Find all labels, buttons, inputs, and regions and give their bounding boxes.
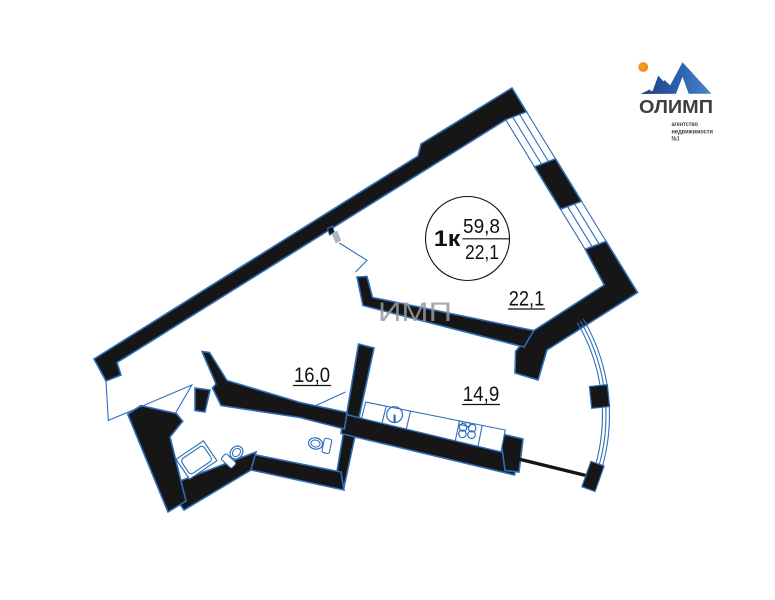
svg-text:ОЛИМП: ОЛИМП [639, 97, 713, 117]
svg-text:1к: 1к [434, 226, 461, 251]
svg-text:14,9: 14,9 [463, 383, 500, 406]
svg-text:59,8: 59,8 [463, 216, 500, 238]
svg-text:22,1: 22,1 [465, 242, 499, 264]
svg-text:недвижимости: недвижимости [672, 128, 714, 135]
svg-text:агентство: агентство [672, 121, 699, 128]
svg-text:№1: №1 [672, 136, 680, 143]
svg-text:16,0: 16,0 [294, 364, 330, 387]
svg-text:ИМП: ИМП [378, 297, 452, 327]
svg-text:22,1: 22,1 [509, 288, 545, 311]
